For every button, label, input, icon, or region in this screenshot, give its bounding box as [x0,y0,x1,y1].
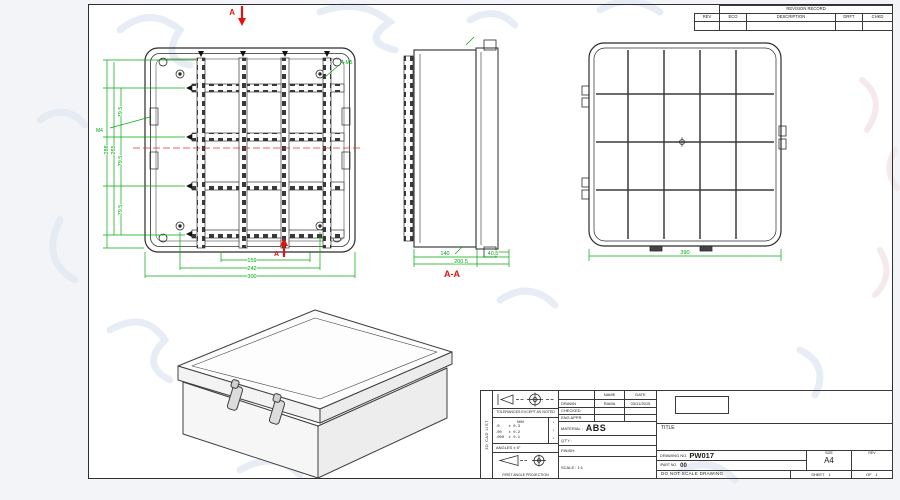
sheet-value: 1 [829,473,831,477]
rev-empty-2 [719,21,747,31]
section-letter-bottom: A [274,251,279,258]
of-label: OF [866,473,872,477]
projection-note: FIRST ANGLE PROJECTION [502,474,548,478]
front-view: 288 265 79.5 79.5 79.5 M4 4-M5 159 242 3… [96,6,362,280]
drawing-no-value: PW017 [689,452,714,460]
eng-appr-date [625,415,656,421]
eng-appr-name [595,415,625,421]
checked-date [625,408,656,414]
revision-record-table: REVISION RECORD REV ECO DESCRIPTION DRFT… [695,6,893,31]
header-spacer [559,391,595,399]
tolerance-row-3: .000 ± 0.1 [495,437,546,441]
finish-label: FINISH: [561,449,575,453]
checked-name [595,408,625,414]
edge-label: 3D CAD LIST [485,420,489,450]
approval-column: NAME DATE DRAWN RAMA 03/11/2015 CHECKED … [559,391,657,478]
units-label: MM [495,420,546,424]
rev-empty-4 [835,21,863,31]
rev-empty-5 [862,21,893,31]
date-header: DATE [625,391,656,399]
rail-arrowheads [186,51,330,237]
size-label: SIZE [825,452,833,456]
dim-rail-spacing-2: 79.5 [118,156,124,167]
section-letter-top: A [229,8,235,17]
angles-note: ANGLES ± 5° [493,443,558,452]
drawing-sheet-page: 288 265 79.5 79.5 79.5 M4 4-M5 159 242 3… [0,0,900,500]
material-label: MATERIAL : [561,427,583,431]
tolerance-table: MM .0 ± 0.3 .00 ± 0.2 .000 ± 0.1 ▪ ▪ ▪ [493,417,558,443]
tolerance-column: TOLERANCES EXCEPT AS NOTED MM .0 ± 0.3 .… [493,391,559,478]
dim-bottom-mid: 242 [247,266,256,272]
dim-lid-width: 390 [680,250,689,256]
logo-area [657,391,892,423]
rev-label: REV [868,452,875,456]
dim-height-mid: 265 [111,145,117,154]
tolerance-row-2: .00 ± 0.2 [495,432,546,436]
size-value: A4 [824,457,834,465]
material-value: ABS [586,424,607,433]
isometric-view [178,310,452,478]
callout-4-m5: 4-M5 [341,60,353,66]
dim-rail-spacing-1: 79.5 [118,107,124,118]
mounting-rails [192,58,344,248]
qty-label: QT'Y : [561,439,572,443]
checked-label: CHECKED [559,408,595,414]
eng-appr-label: ENG APPR [559,415,595,421]
dim-lid-depth: 40.5 [488,251,499,257]
sheet-label: SHEET [811,473,824,477]
title-column: TITLE DRAWING NO. PW017 /PART NO. 00 [657,391,892,478]
part-no-label: /PART NO. [660,464,677,468]
drawn-name: RAMA [595,400,625,407]
front-dimensions [103,60,355,278]
part-no-value: 00 [680,463,687,469]
of-value: 1 [876,473,878,477]
rev-empty-3 [746,21,836,31]
drawn-date: 03/11/2015 [625,400,656,407]
tolerance-row-1: .0 ± 0.3 [495,426,546,430]
dim-body-depth: 140 [440,251,449,257]
dim-rail-spacing-3: 79.5 [118,205,124,216]
title-block: 3D CAD LIST TOLERANCES EXCEPT AS NOTED [480,390,893,479]
title-block-edge-strip: 3D CAD LIST [481,391,493,478]
tolerance-mark-1: ▪ [553,421,554,424]
name-header: NAME [595,391,625,399]
section-label: A-A [444,269,460,279]
do-not-scale-note: DO NOT SCALE DRAWING [657,471,790,478]
dim-height-overall: 288 [104,145,110,154]
scale-label: SCALE : 1:1 [561,466,583,470]
projection-symbol-bottom: FIRST ANGLE PROJECTION [493,452,558,478]
tolerance-mark-3: ▪ [553,437,554,440]
tolerance-note: TOLERANCES EXCEPT AS NOTED [493,408,558,417]
logo-box [675,396,729,414]
rev-empty-1 [694,21,720,31]
drawing-no-label: DRAWING NO. [660,454,687,458]
side-section-view: 140 40.5 200.5 A-A [404,37,509,279]
title-label: TITLE [657,423,892,450]
dim-total-depth: 200.5 [454,259,468,265]
projection-symbol-top [493,391,558,408]
back-view: 390 [582,43,786,261]
dim-bottom-outer: 300 [247,274,256,280]
dim-bottom-inner: 159 [247,258,256,264]
drawn-label: DRAWN [559,400,595,407]
callout-m4: M4 [96,128,103,134]
tolerance-mark-2: ▪ [553,429,554,432]
